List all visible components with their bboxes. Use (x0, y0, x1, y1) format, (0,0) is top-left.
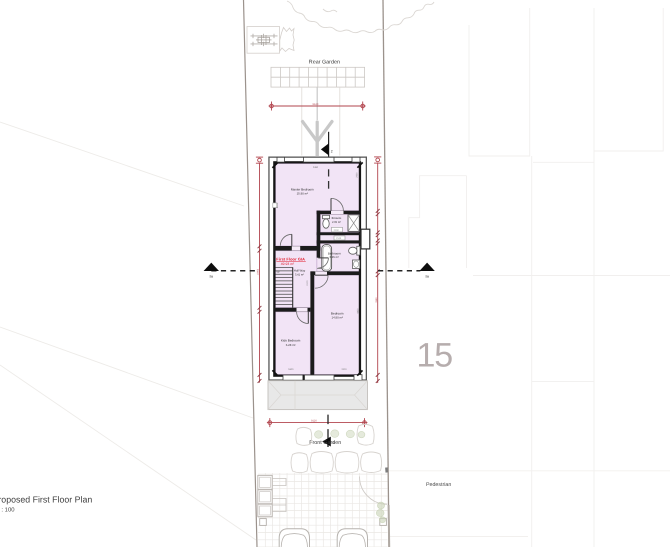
svg-text:4420: 4420 (357, 308, 360, 314)
svg-text:3960: 3960 (375, 297, 378, 303)
svg-text:6.28 m²: 6.28 m² (286, 343, 296, 347)
svg-text:2410: 2410 (341, 368, 347, 371)
svg-text:10962: 10962 (257, 268, 260, 275)
svg-text:9120: 9120 (311, 419, 317, 422)
svg-text:2.05 m²: 2.05 m² (332, 221, 341, 224)
svg-text:1 : 100: 1 : 100 (0, 507, 15, 514)
svg-text:First Floor GIA: First Floor GIA (276, 256, 305, 261)
svg-text:Front Garden: Front Garden (309, 440, 341, 446)
svg-text:49.93 m²: 49.93 m² (281, 262, 295, 266)
svg-text:2140: 2140 (336, 237, 342, 240)
svg-text:1800: 1800 (288, 368, 294, 371)
svg-text:Rear Garden: Rear Garden (309, 60, 340, 66)
svg-text:Proposed First Floor Plan: Proposed First Floor Plan (0, 495, 92, 505)
svg-text:5480: 5480 (313, 166, 319, 169)
svg-text:Ensuite: Ensuite (332, 216, 342, 220)
svg-text:2690: 2690 (356, 172, 359, 178)
svg-text:9120: 9120 (313, 103, 319, 106)
svg-text:15: 15 (417, 336, 453, 374)
svg-text:2: 2 (331, 150, 333, 154)
svg-text:Hall Way: Hall Way (294, 269, 306, 273)
svg-text:4570: 4570 (276, 202, 279, 208)
svg-text:Pedestrian: Pedestrian (426, 482, 451, 488)
svg-text:15.80 m²: 15.80 m² (297, 192, 308, 196)
svg-text:SB: SB (425, 275, 429, 279)
svg-text:14.80 m²: 14.80 m² (331, 316, 342, 320)
svg-text:5.41 m²: 5.41 m² (295, 273, 304, 276)
svg-text:3.95 m²: 3.95 m² (329, 255, 339, 259)
svg-text:2102: 2102 (334, 229, 340, 232)
svg-text:SB: SB (209, 275, 213, 279)
svg-text:2170: 2170 (306, 280, 309, 286)
